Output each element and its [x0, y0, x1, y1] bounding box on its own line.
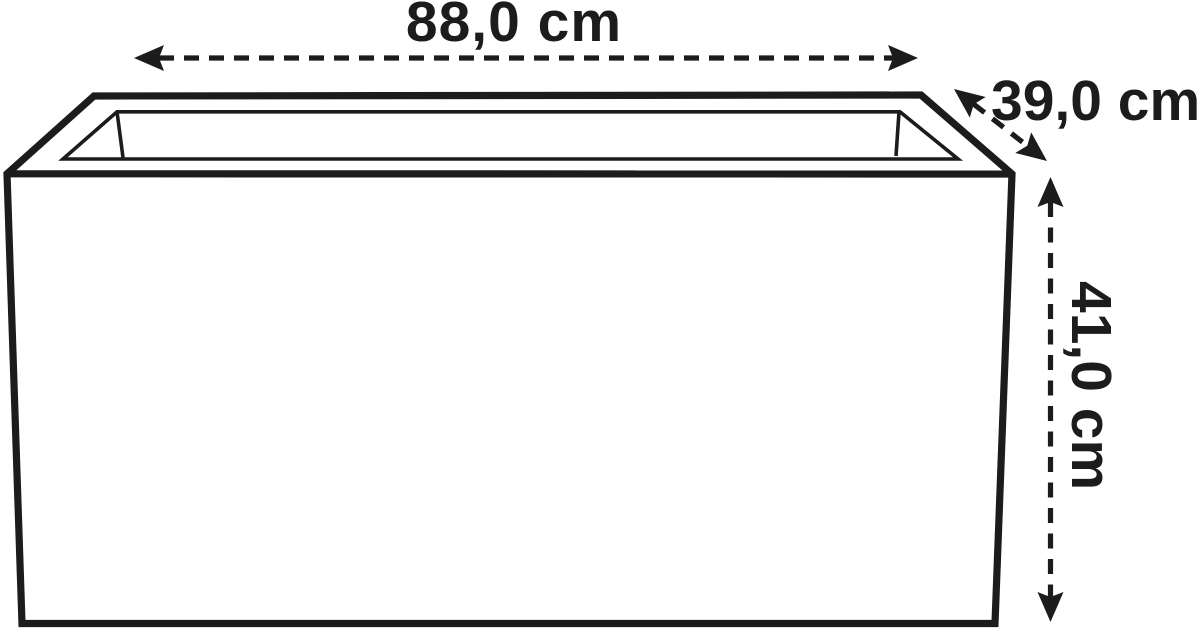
svg-text:41,0 cm: 41,0 cm: [1059, 281, 1123, 490]
svg-text:88,0 cm: 88,0 cm: [406, 0, 622, 54]
svg-text:39,0 cm: 39,0 cm: [991, 69, 1200, 133]
